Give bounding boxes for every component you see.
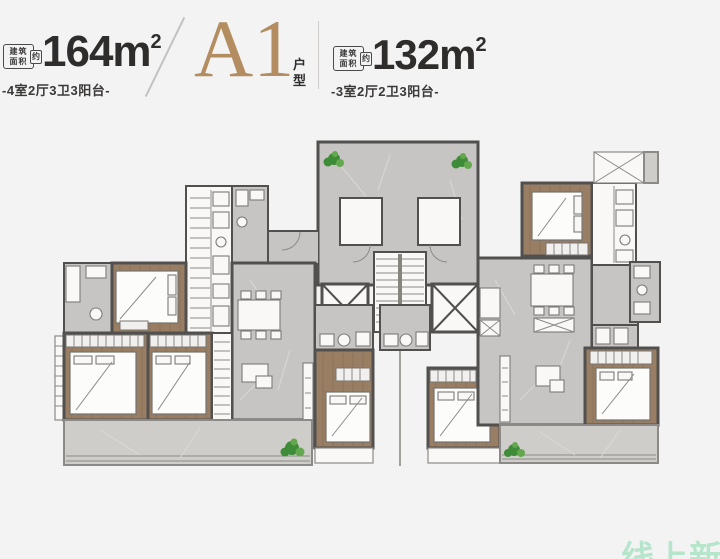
bay-window: [428, 448, 500, 463]
balcony-left: [64, 420, 312, 465]
bed: [152, 352, 206, 414]
floorplan-page: { "header": { "units": [ { "badge": {"to…: [0, 0, 720, 559]
elevator-lobby-left: [340, 198, 382, 245]
entry-cabinet: [480, 288, 500, 336]
dining-table-left: [238, 291, 281, 339]
wardrobe: [336, 368, 370, 381]
flue-shaft: [644, 152, 658, 183]
bed: [116, 271, 178, 323]
bay-window: [315, 448, 373, 463]
dining-table-right: [531, 265, 574, 315]
wardrobe: [590, 351, 652, 364]
elevator-lobby-right: [418, 198, 460, 245]
wardrobe: [546, 243, 588, 255]
bed: [326, 392, 370, 442]
balcony-right: [500, 425, 658, 463]
wardrobe: [430, 370, 476, 382]
bathroom-fixtures: [384, 332, 428, 346]
closet-column: [212, 333, 232, 420]
dresser: [120, 321, 148, 330]
bed: [70, 352, 136, 414]
bed: [532, 192, 582, 240]
tv-cabinet-right: [500, 356, 510, 422]
watermark: 线上新房: [621, 531, 720, 559]
bathroom-fixtures: [320, 332, 370, 346]
kitchen-appliances: [616, 190, 633, 262]
console-table: [534, 318, 574, 332]
bed: [596, 368, 650, 420]
wardrobe: [66, 335, 144, 347]
kitchen-appliances: [213, 192, 229, 326]
floorplan-drawing: [0, 0, 720, 559]
